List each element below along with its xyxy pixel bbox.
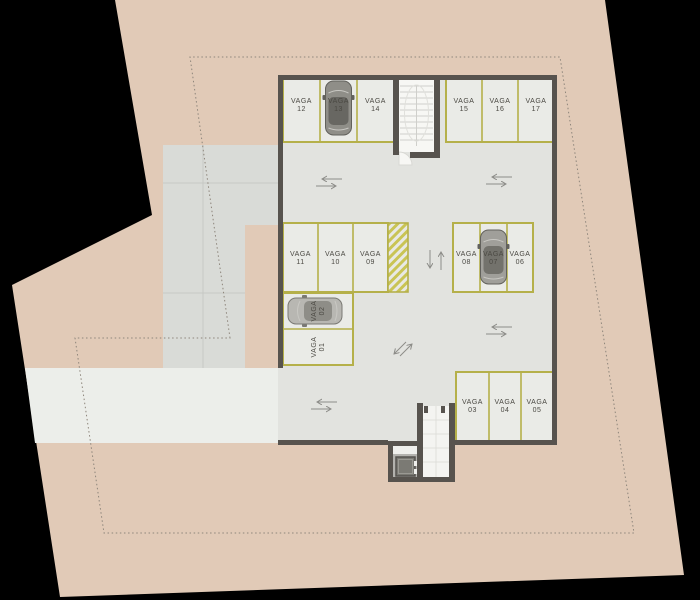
stall-number: 12 [297,106,306,113]
staircase-top [393,75,440,165]
stall-number: 01 [319,343,326,352]
stall-label: VAGA [365,98,386,105]
stall-number: 15 [460,106,469,113]
stall-label: VAGA [290,251,311,258]
stall-number: 17 [532,106,541,113]
elevator-door-mark [414,461,417,466]
stall-label: VAGA [526,98,547,105]
door-track [441,406,445,413]
stall-label: VAGA [360,251,381,258]
stall-label: VAGA [490,98,511,105]
door-track [424,406,428,413]
stall-label: VAGA [462,399,483,406]
stall-number: 05 [533,407,542,414]
stall-label: VAGA [527,399,548,406]
elevator-door-mark [414,469,417,474]
stall-label: VAGA [311,301,318,322]
floor-plan-stage: VAGA 12 VAGA 13 VAGA 14 VAGA 15 VAGA 16 … [0,0,700,600]
stall-number: 06 [516,259,525,266]
no-parking-hatch-strip [388,223,408,292]
stall-label: VAGA [483,251,504,258]
stall-number: 13 [334,106,343,113]
floor-plan-drawing: VAGA 12 VAGA 13 VAGA 14 VAGA 15 VAGA 16 … [0,0,700,600]
stall-number: 11 [296,259,304,266]
stall-label: VAGA [510,251,531,258]
stall-number: 14 [371,106,380,113]
stall-label: VAGA [291,98,312,105]
stall-label: VAGA [328,98,349,105]
stall-number: 02 [319,307,326,316]
stall-label: VAGA [311,337,318,358]
stall-number: 10 [331,259,340,266]
stall-number: 16 [496,106,505,113]
stall-label: VAGA [454,98,475,105]
stall-number: 04 [501,407,510,414]
stall-label: VAGA [325,251,346,258]
driveway-band [25,368,278,443]
stall-number: 03 [468,407,477,414]
stall-number: 07 [489,259,498,266]
stall-label: VAGA [495,399,516,406]
stall-label: VAGA [456,251,477,258]
stall-number: 08 [462,259,471,266]
stall-number: 09 [366,259,375,266]
